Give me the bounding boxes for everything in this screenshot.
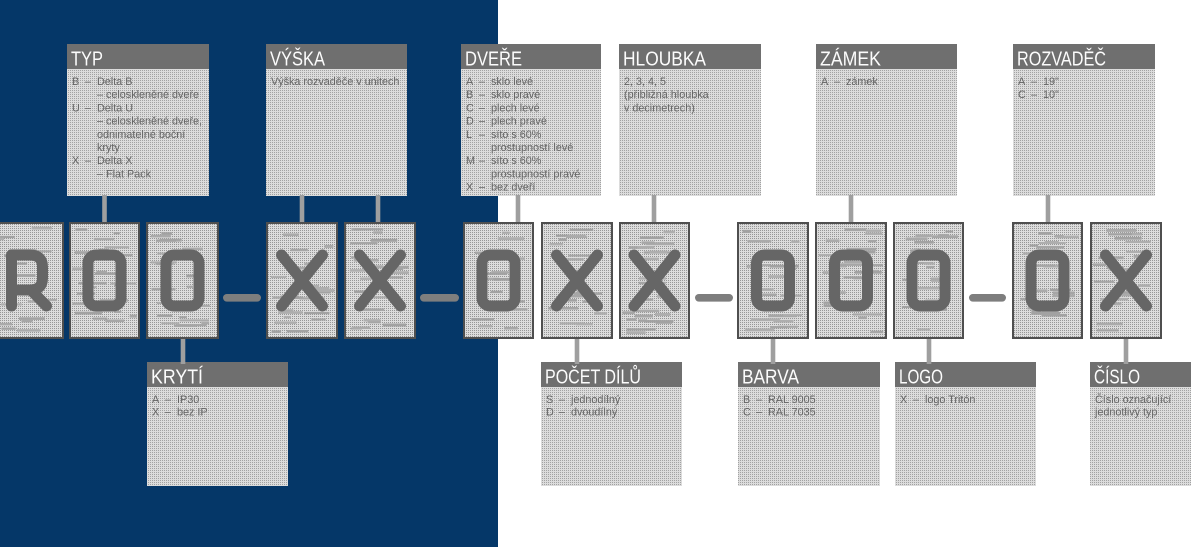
- svg-text:– celoskleněné dveře: – celoskleněné dveře: [97, 89, 199, 101]
- svg-text:prostupností pravé: prostupností pravé: [491, 168, 580, 180]
- svg-text:VÝŠKA: VÝŠKA: [270, 48, 326, 71]
- svg-text:Číslo označující: Číslo označující: [1095, 393, 1171, 406]
- svg-text:LOGO: LOGO: [899, 367, 943, 389]
- svg-text:KRYTÍ: KRYTÍ: [151, 366, 203, 389]
- svg-text:2, 3, 4, 5: 2, 3, 4, 5: [624, 76, 666, 88]
- svg-text:(přibližná hloubka: (přibližná hloubka: [624, 89, 709, 101]
- svg-text:POČET DÍLŮ: POČET DÍLŮ: [545, 365, 641, 389]
- svg-text:ROZVADĚČ: ROZVADĚČ: [1017, 48, 1106, 71]
- svg-text:prostupností levé: prostupností levé: [491, 142, 573, 154]
- svg-text:odnimatelné boční: odnimatelné boční: [97, 129, 185, 141]
- svg-text:v decimetrech): v decimetrech): [624, 102, 695, 114]
- svg-text:D–plech pravé: D–plech pravé: [466, 116, 547, 128]
- svg-text:kryty: kryty: [97, 142, 120, 154]
- svg-text:TYP: TYP: [71, 49, 103, 71]
- svg-text:ZÁMEK: ZÁMEK: [820, 48, 882, 71]
- svg-text:– Flat Pack: – Flat Pack: [97, 168, 152, 180]
- svg-text:ČÍSLO: ČÍSLO: [1094, 366, 1140, 389]
- svg-text:Výška rozvaděče v unitech: Výška rozvaděče v unitech: [271, 76, 399, 88]
- svg-text:DVEŘE: DVEŘE: [465, 48, 522, 71]
- svg-text:BARVA: BARVA: [742, 367, 800, 389]
- svg-text:jednotlivý typ: jednotlivý typ: [1094, 406, 1157, 418]
- svg-text:– celoskleněné dveře,: – celoskleněné dveře,: [97, 116, 202, 128]
- svg-text:HLOUBKA: HLOUBKA: [623, 49, 707, 71]
